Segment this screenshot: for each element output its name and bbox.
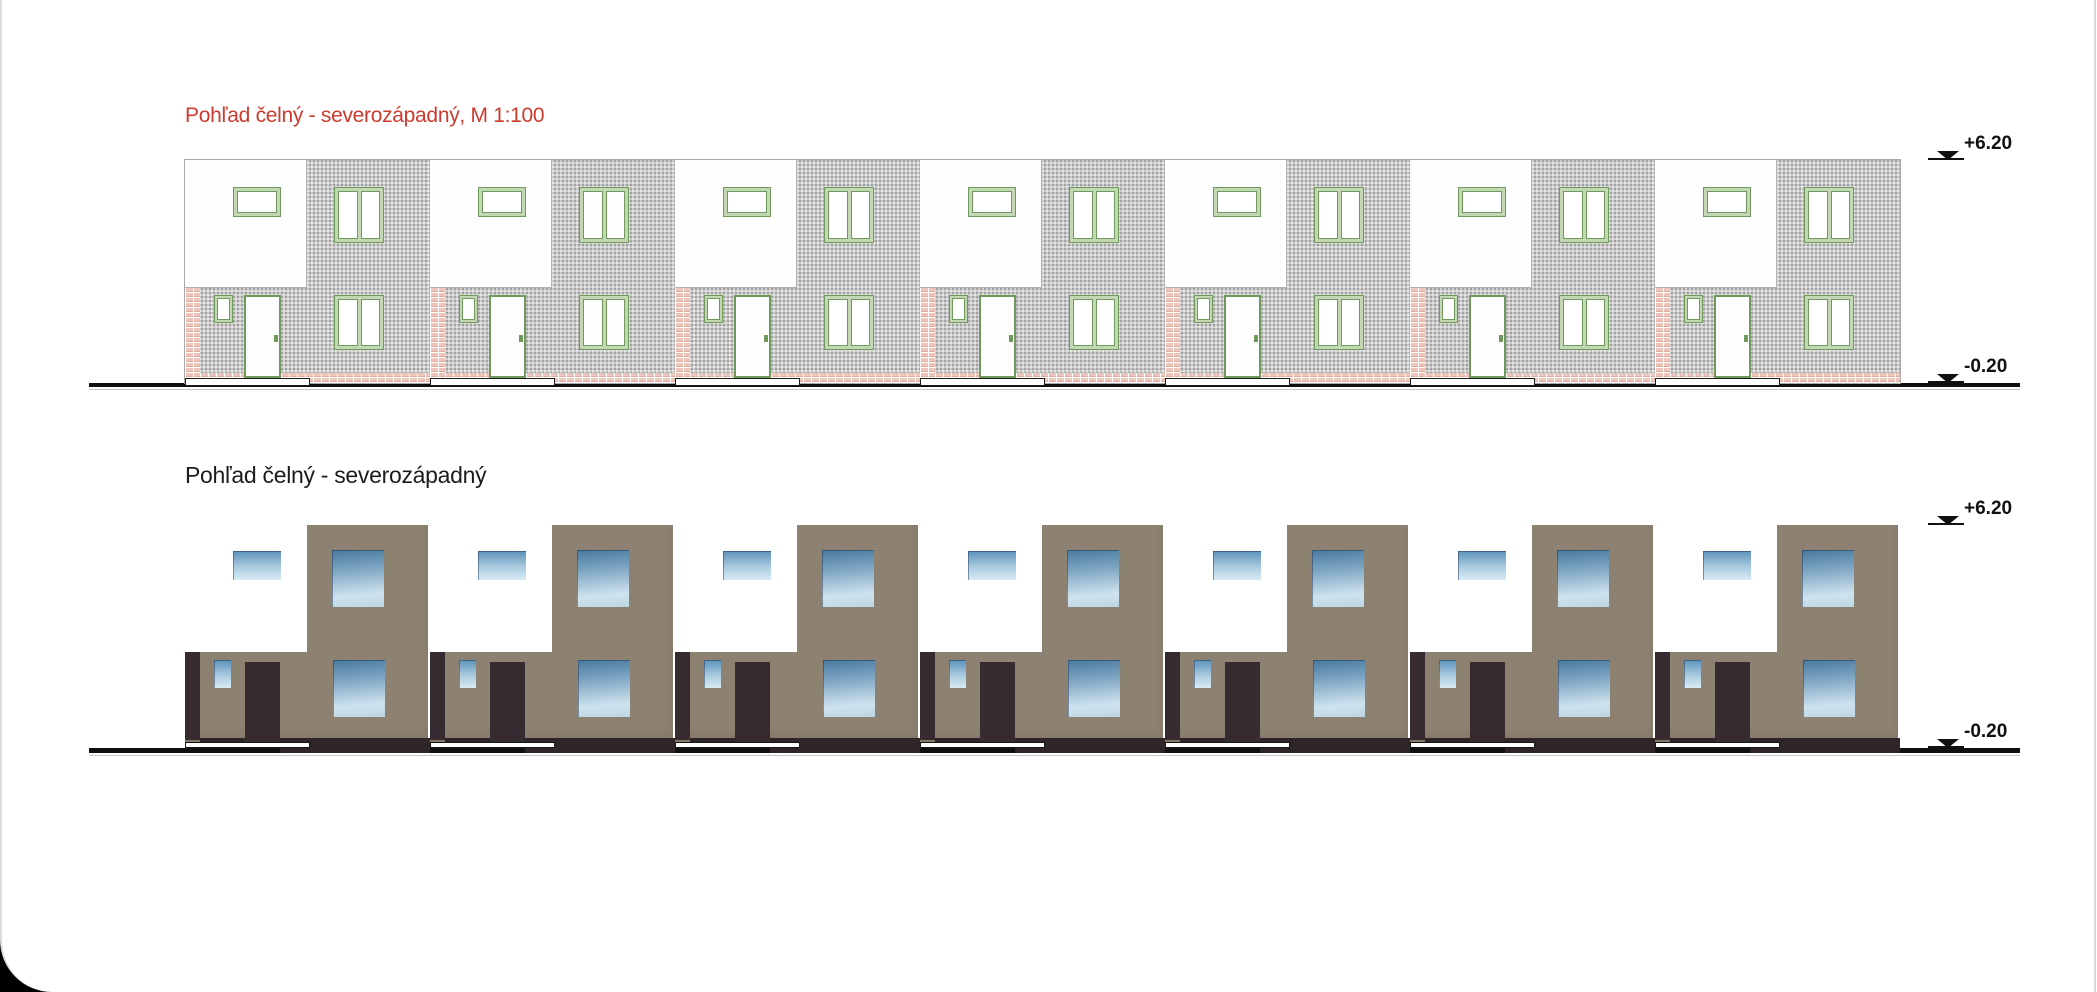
entrance-door: [734, 295, 771, 378]
window-pane: [851, 191, 871, 239]
window-pane: [1563, 299, 1583, 346]
window-lower-small: [704, 295, 723, 323]
window-lower-small: [459, 295, 478, 323]
entrance-step: [430, 378, 555, 386]
brick-pilaster: [1655, 288, 1670, 383]
window-upper-large: [1069, 187, 1119, 243]
window-upper-small: [478, 187, 526, 217]
dark-pilaster: [185, 652, 200, 740]
house-unit: [920, 525, 1165, 753]
entrance-step: [430, 742, 555, 748]
entrance-step: [1410, 742, 1535, 748]
window-upper-small: [1703, 551, 1751, 580]
house-unit: [430, 160, 675, 383]
level-triangle-icon: [1937, 151, 1959, 160]
brick-pilaster: [920, 288, 935, 383]
window-pane: [1586, 191, 1606, 239]
window-pane: [1073, 299, 1093, 346]
house-unit: [1165, 525, 1410, 753]
door-handle-icon: [764, 335, 768, 342]
window-lower-small: [214, 660, 231, 688]
window-pane: [1217, 191, 1257, 213]
dark-pilaster: [920, 652, 935, 740]
window-pane: [707, 298, 720, 320]
window-upper-small: [1458, 551, 1506, 580]
house-unit: [430, 525, 675, 753]
bottom-drawing-title: Pohľad čelný - severozápadný: [185, 462, 486, 489]
window-lower-large: [824, 295, 874, 350]
entrance-door: [489, 295, 526, 378]
window-pane: [972, 191, 1012, 213]
window-pane: [1687, 298, 1700, 320]
window-upper-large: [334, 187, 384, 243]
entrance-step: [1165, 378, 1290, 386]
window-pane: [851, 299, 871, 346]
facade-white-panel: [185, 160, 307, 288]
dark-pilaster: [1655, 652, 1670, 740]
brick-pilaster: [430, 288, 445, 383]
entrance-door: [980, 662, 1015, 743]
window-pane: [1341, 191, 1361, 239]
window-pane: [338, 299, 358, 346]
page-right-border: [2094, 0, 2096, 992]
house-unit: [1410, 160, 1655, 383]
window-lower-large: [823, 660, 875, 717]
entrance-door: [979, 295, 1016, 378]
window-upper-large: [1802, 550, 1854, 607]
entrance-door: [1225, 662, 1260, 743]
window-upper-small: [1213, 187, 1261, 217]
window-lower-large: [1313, 660, 1365, 717]
window-lower-large: [1803, 660, 1855, 717]
entrance-step: [1165, 742, 1290, 748]
window-lower-large: [333, 660, 385, 717]
house-unit: [675, 160, 920, 383]
level-triangle-icon: [1937, 374, 1959, 383]
house-unit: [185, 160, 430, 383]
house-unit: [675, 525, 920, 753]
window-lower-small: [704, 660, 721, 688]
brick-pilaster: [1410, 288, 1425, 383]
window-pane: [583, 191, 603, 239]
window-pane: [1831, 299, 1851, 346]
window-pane: [727, 191, 767, 213]
window-pane: [1563, 191, 1583, 239]
window-pane: [1318, 299, 1338, 346]
window-upper-large: [1557, 550, 1609, 607]
window-pane: [482, 191, 522, 213]
window-upper-small: [478, 551, 526, 580]
window-pane: [1586, 299, 1606, 346]
window-upper-large: [577, 550, 629, 607]
window-pane: [361, 299, 381, 346]
window-lower-large: [1804, 295, 1854, 350]
brick-pilaster: [1165, 288, 1180, 383]
house-unit: [185, 525, 430, 753]
window-lower-small: [1439, 660, 1456, 688]
facade-white-panel: [1655, 525, 1777, 652]
house-unit: [1165, 160, 1410, 383]
door-handle-icon: [274, 335, 278, 342]
window-lower-large: [578, 660, 630, 717]
entrance-step: [920, 742, 1045, 748]
entrance-door: [245, 662, 280, 743]
house-unit: [1655, 160, 1900, 383]
window-lower-small: [949, 660, 966, 688]
entrance-step: [185, 742, 310, 748]
window-upper-small: [723, 187, 771, 217]
window-lower-small: [1439, 295, 1458, 323]
window-upper-small: [968, 187, 1016, 217]
top-drawing-title: Pohľad čelný - severozápadný, M 1:100: [185, 104, 544, 128]
facade-white-panel: [675, 160, 797, 288]
window-upper-small: [968, 551, 1016, 580]
door-handle-icon: [1499, 335, 1503, 342]
window-upper-small: [1213, 551, 1261, 580]
window-lower-small: [214, 295, 233, 323]
window-upper-large: [1559, 187, 1609, 243]
entrance-step: [1655, 742, 1780, 748]
level-triangle-icon: [1937, 516, 1959, 525]
brick-pilaster: [185, 288, 200, 383]
window-upper-large: [579, 187, 629, 243]
window-upper-small: [1703, 187, 1751, 217]
entrance-door: [1715, 662, 1750, 743]
window-lower-small: [1194, 295, 1213, 323]
dark-pilaster: [675, 652, 690, 740]
entrance-door: [1714, 295, 1751, 378]
window-pane: [1831, 191, 1851, 239]
door-handle-icon: [1254, 335, 1258, 342]
window-lower-large: [1558, 660, 1610, 717]
entrance-step: [1410, 378, 1535, 386]
window-pane: [1096, 191, 1116, 239]
window-lower-small: [949, 295, 968, 323]
door-handle-icon: [1744, 335, 1748, 342]
house-unit: [1410, 525, 1655, 753]
facade-white-panel: [1165, 525, 1287, 652]
entrance-step: [675, 742, 800, 748]
window-pane: [952, 298, 965, 320]
window-pane: [1073, 191, 1093, 239]
document-page: Pohľad čelný - severozápadný, M 1:100: [0, 0, 2097, 992]
facade-white-panel: [920, 160, 1042, 288]
dark-pilaster: [1410, 652, 1425, 740]
window-upper-small: [233, 187, 281, 217]
entrance-door: [1469, 295, 1506, 378]
window-lower-small: [1194, 660, 1211, 688]
window-upper-large: [822, 550, 874, 607]
facade-technical-elevation: [185, 160, 1900, 383]
window-pane: [1442, 298, 1455, 320]
window-upper-large: [1312, 550, 1364, 607]
window-lower-small: [1684, 295, 1703, 323]
window-upper-large: [1314, 187, 1364, 243]
window-pane: [1096, 299, 1116, 346]
window-lower-small: [1684, 660, 1701, 688]
window-lower-large: [1069, 295, 1119, 350]
window-lower-small: [459, 660, 476, 688]
window-pane: [462, 298, 475, 320]
entrance-door: [1470, 662, 1505, 743]
facade-rendered-elevation: [185, 525, 1900, 753]
facade-white-panel: [1410, 525, 1532, 652]
window-pane: [338, 191, 358, 239]
window-upper-small: [723, 551, 771, 580]
entrance-step: [675, 378, 800, 386]
facade-white-panel: [430, 160, 552, 288]
dark-pilaster: [430, 652, 445, 740]
window-upper-small: [1458, 187, 1506, 217]
door-handle-icon: [519, 335, 523, 342]
dark-pilaster: [1165, 652, 1180, 740]
window-pane: [828, 299, 848, 346]
window-lower-large: [579, 295, 629, 350]
entrance-door: [735, 662, 770, 743]
window-lower-large: [334, 295, 384, 350]
window-upper-large: [332, 550, 384, 607]
window-lower-large: [1314, 295, 1364, 350]
window-pane: [1808, 191, 1828, 239]
facade-white-panel: [430, 525, 552, 652]
window-pane: [606, 191, 626, 239]
facade-white-panel: [1655, 160, 1777, 288]
elevation-label: +6.20: [1964, 133, 2012, 155]
window-pane: [217, 298, 230, 320]
entrance-door: [1224, 295, 1261, 378]
house-unit: [920, 160, 1165, 383]
facade-white-panel: [675, 525, 797, 652]
entrance-step: [185, 378, 310, 386]
facade-white-panel: [185, 525, 307, 652]
window-pane: [1341, 299, 1361, 346]
window-pane: [1808, 299, 1828, 346]
window-pane: [606, 299, 626, 346]
window-lower-large: [1559, 295, 1609, 350]
window-upper-large: [1067, 550, 1119, 607]
window-pane: [1197, 298, 1210, 320]
window-pane: [1707, 191, 1747, 213]
elevation-label: +6.20: [1964, 498, 2012, 520]
window-upper-small: [233, 551, 281, 580]
facade-white-panel: [1165, 160, 1287, 288]
window-lower-large: [1068, 660, 1120, 717]
elevation-label: -0.20: [1964, 356, 2007, 378]
facade-white-panel: [920, 525, 1042, 652]
window-pane: [1462, 191, 1502, 213]
door-handle-icon: [1009, 335, 1013, 342]
window-pane: [237, 191, 277, 213]
house-unit: [1655, 525, 1900, 753]
window-upper-large: [1804, 187, 1854, 243]
window-pane: [828, 191, 848, 239]
facade-white-panel: [1410, 160, 1532, 288]
entrance-door: [490, 662, 525, 743]
elevation-label: -0.20: [1964, 721, 2007, 743]
entrance-door: [244, 295, 281, 378]
window-pane: [1318, 191, 1338, 239]
entrance-step: [920, 378, 1045, 386]
brick-pilaster: [675, 288, 690, 383]
window-upper-large: [824, 187, 874, 243]
level-triangle-icon: [1937, 739, 1959, 748]
entrance-step: [1655, 378, 1780, 386]
window-pane: [583, 299, 603, 346]
window-pane: [361, 191, 381, 239]
